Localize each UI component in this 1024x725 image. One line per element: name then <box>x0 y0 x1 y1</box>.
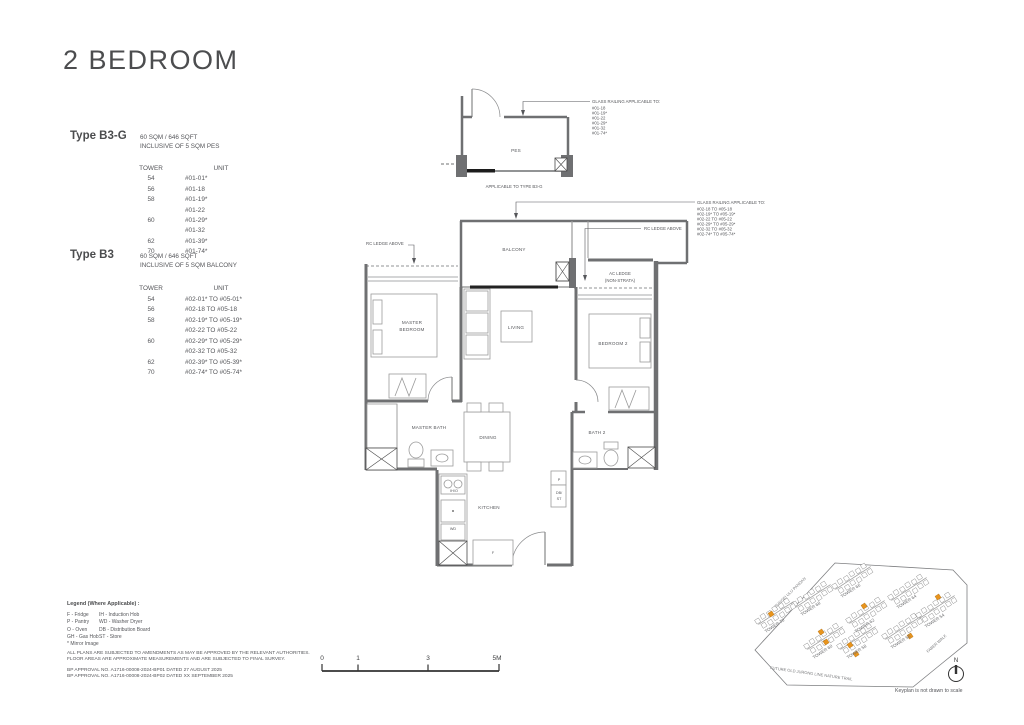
keyplan-road-trail: FUTURE OLD JURONG LINE NATURE TRAIL <box>770 665 854 682</box>
pes-outline <box>441 89 573 177</box>
room-label-bath2: BATH 2 <box>589 430 606 435</box>
svg-text:0: 0 <box>320 655 324 662</box>
svg-text:N: N <box>954 658 958 664</box>
svg-text:1: 1 <box>356 655 360 662</box>
svg-text:GLASS RAILING APPLICABLE TO:: GLASS RAILING APPLICABLE TO: <box>592 99 660 104</box>
svg-text:5M: 5M <box>492 655 501 662</box>
room-label-balcony: BALCONY <box>502 247 525 252</box>
room-label-master-bedroom-1: MASTER <box>402 320 423 325</box>
svg-text:#01-74*: #01-74* <box>592 131 607 136</box>
svg-text:3: 3 <box>426 655 430 662</box>
ac-ledge-label-1: AC LEDGE <box>609 271 631 276</box>
rc-ledge-note-right: RC LEDGE ABOVE <box>644 226 682 231</box>
fixture-label-db: DB/ <box>556 491 563 495</box>
room-label-bedroom2: BEDROOM 2 <box>598 341 628 346</box>
keyplan: TOWER 66 TOWER 68 TOWER 70 TOWER 64 TOWE… <box>754 561 967 694</box>
svg-text:#02-74* TO #05-74*: #02-74* TO #05-74* <box>697 232 736 237</box>
svg-text:GLASS RAILING APPLICABLE TO:: GLASS RAILING APPLICABLE TO: <box>697 200 765 205</box>
floorplan-page: 2 BEDROOM Type B3-G 60 SQM / 646 SQFT IN… <box>0 0 1024 725</box>
keyplan-note: Keyplan is not drawn to scale <box>895 688 963 694</box>
room-label-living: LIVING <box>508 325 524 330</box>
room-label-master-bath: MASTER BATH <box>412 425 447 430</box>
fixture-label-st: ST <box>557 497 563 501</box>
room-label-kitchen: KITCHEN <box>478 505 500 510</box>
scale-bar: 0 1 3 5M <box>320 655 501 671</box>
fixture-label-wd: WD <box>450 527 457 531</box>
north-arrow-icon: N <box>949 658 964 682</box>
room-label-pes: PES <box>511 148 521 153</box>
floor-plan-drawing: PES APPLICABLE TO TYPE B3-G <box>0 0 1024 725</box>
room-label-dining: DINING <box>479 435 497 440</box>
ac-ledge-label-2: (NON-STRATA) <box>605 278 636 283</box>
glass-railing-note-b3g: GLASS RAILING APPLICABLE TO: #01-18 #01-… <box>592 99 660 136</box>
room-label-master-bedroom-2: BEDROOM <box>399 327 424 332</box>
keyplan-road-faber: FABER WALK <box>925 633 947 654</box>
fixture-label-ih-o: IH/O <box>450 489 458 493</box>
fixture-label-p: P <box>558 478 561 482</box>
leader-lines <box>408 102 695 282</box>
applicable-to-note: APPLICABLE TO TYPE B3-G <box>486 184 543 189</box>
rc-ledge-note-left: RC LEDGE ABOVE <box>366 241 404 246</box>
glass-railing-note-b3: GLASS RAILING APPLICABLE TO: #02-18 TO #… <box>697 200 765 237</box>
